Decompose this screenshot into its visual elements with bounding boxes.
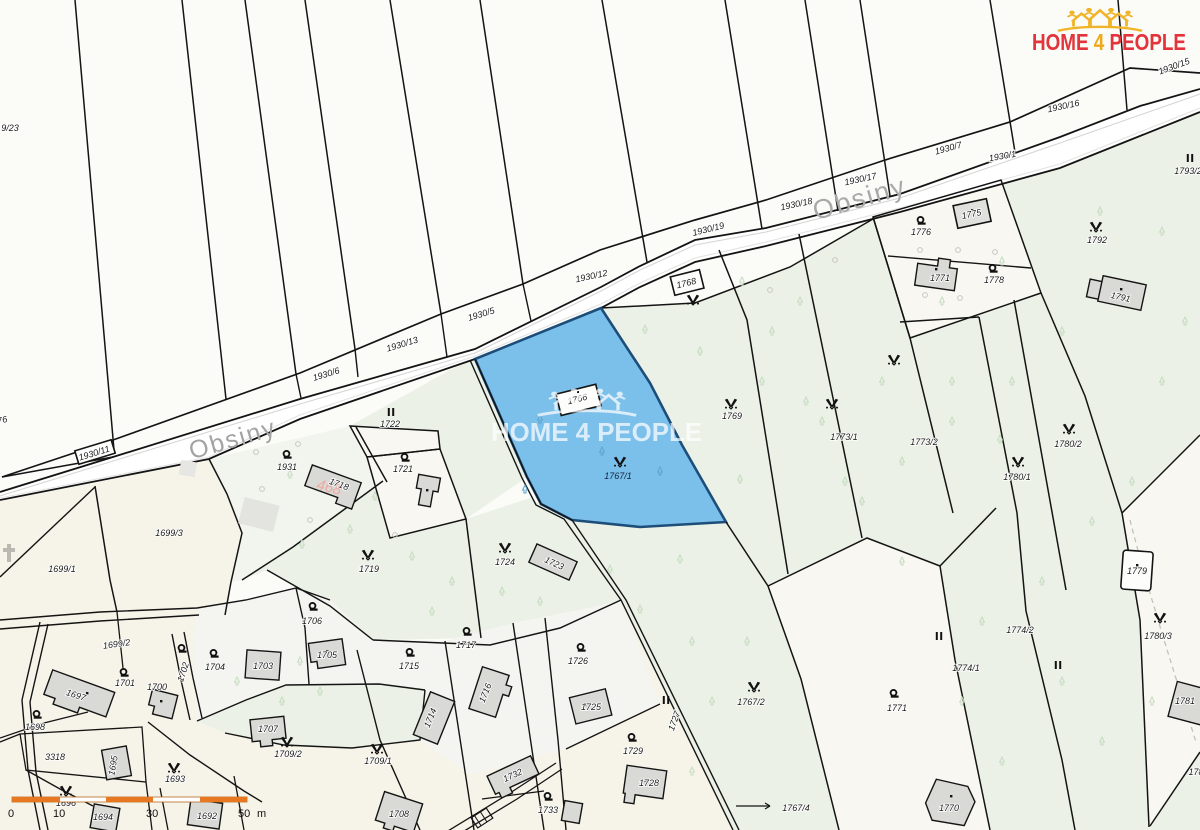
svg-text:1715: 1715	[399, 661, 420, 671]
svg-text:1705: 1705	[317, 650, 338, 660]
svg-text:1733: 1733	[538, 805, 558, 815]
svg-text:m: m	[257, 808, 266, 820]
svg-text:1699/3: 1699/3	[155, 528, 183, 538]
svg-text:1773/2: 1773/2	[910, 437, 938, 447]
svg-text:30: 30	[146, 808, 158, 820]
svg-text:1708: 1708	[389, 809, 409, 819]
svg-text:1771: 1771	[887, 703, 907, 713]
svg-text:1774/1: 1774/1	[952, 663, 980, 673]
svg-text:1704: 1704	[205, 662, 225, 672]
svg-text:1706: 1706	[302, 616, 322, 626]
svg-text:1724: 1724	[495, 557, 515, 567]
svg-text:10: 10	[53, 808, 65, 820]
svg-text:0: 0	[8, 808, 14, 820]
svg-text:1701: 1701	[115, 678, 135, 688]
svg-text:1725: 1725	[581, 702, 602, 712]
svg-text:1700: 1700	[147, 682, 167, 692]
svg-text:1698: 1698	[25, 722, 45, 732]
svg-text:1773/1: 1773/1	[830, 432, 858, 442]
svg-text:1703: 1703	[253, 661, 273, 671]
svg-text:50: 50	[238, 808, 250, 820]
svg-text:1792: 1792	[1087, 235, 1107, 245]
svg-text:1780/2: 1780/2	[1054, 439, 1082, 449]
svg-text:1767/4: 1767/4	[782, 803, 810, 813]
svg-text:1931: 1931	[277, 462, 297, 472]
svg-text:1779: 1779	[1127, 566, 1147, 576]
svg-text:1709/1: 1709/1	[364, 756, 392, 766]
svg-text:1722: 1722	[380, 419, 400, 429]
svg-text:1726: 1726	[568, 656, 588, 666]
svg-text:1693: 1693	[165, 774, 185, 784]
svg-text:HOME 4 PEOPLE: HOME 4 PEOPLE	[1032, 29, 1186, 55]
svg-text:1776: 1776	[911, 227, 931, 237]
svg-text:1707: 1707	[258, 724, 279, 734]
svg-text:1719: 1719	[359, 564, 379, 574]
svg-text:1770: 1770	[939, 803, 959, 813]
svg-text:9/23: 9/23	[1, 123, 19, 133]
svg-text:1717: 1717	[456, 640, 477, 650]
svg-text:1780/3: 1780/3	[1144, 631, 1172, 641]
svg-text:1781: 1781	[1175, 696, 1195, 706]
svg-text:1699/1: 1699/1	[48, 564, 76, 574]
svg-text:1774/2: 1774/2	[1006, 625, 1034, 635]
svg-text:1694: 1694	[93, 812, 113, 822]
svg-text:HOME 4 PEOPLE: HOME 4 PEOPLE	[491, 417, 702, 447]
svg-text:1780/1: 1780/1	[1003, 472, 1031, 482]
svg-text:1709/2: 1709/2	[274, 749, 302, 759]
svg-text:1721: 1721	[393, 464, 413, 474]
svg-text:1767/1: 1767/1	[604, 471, 632, 481]
svg-text:1793/2: 1793/2	[1174, 166, 1200, 176]
svg-text:178: 178	[1188, 767, 1200, 777]
svg-text:1728: 1728	[639, 778, 659, 788]
svg-text:1729: 1729	[623, 746, 643, 756]
svg-text:1771: 1771	[930, 273, 950, 283]
svg-text:3318: 3318	[45, 752, 65, 762]
svg-text:1767/2: 1767/2	[737, 697, 765, 707]
svg-text:1778: 1778	[984, 275, 1004, 285]
svg-text:1692: 1692	[197, 811, 217, 821]
svg-text:1769: 1769	[722, 411, 742, 421]
